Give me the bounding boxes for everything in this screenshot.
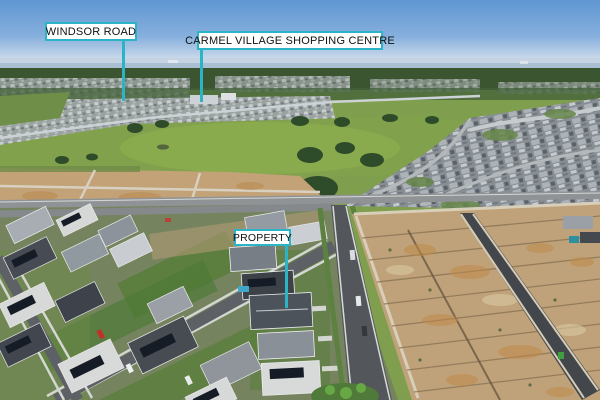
parked-van bbox=[350, 250, 356, 260]
parked-van bbox=[356, 296, 362, 306]
windsor-road-label: WINDSOR ROAD bbox=[45, 22, 137, 41]
property-label: PROPERTY bbox=[234, 229, 291, 246]
windsor-road-leader-line bbox=[122, 40, 125, 101]
portable-toilet bbox=[558, 352, 564, 359]
aerial-listing-photo: WINDSOR ROAD CARMEL VILLAGE SHOPPING CEN… bbox=[0, 0, 600, 400]
swimming-pool bbox=[238, 286, 249, 292]
aerial-scene bbox=[0, 0, 600, 400]
small-car bbox=[165, 218, 171, 222]
property-leader-line bbox=[285, 245, 288, 308]
dark-car bbox=[362, 326, 368, 336]
vacant-lots bbox=[352, 202, 600, 400]
shopping-centre-label: CARMEL VILLAGE SHOPPING CENTRE bbox=[197, 31, 383, 50]
shopping-centre-leader-line bbox=[200, 49, 203, 102]
